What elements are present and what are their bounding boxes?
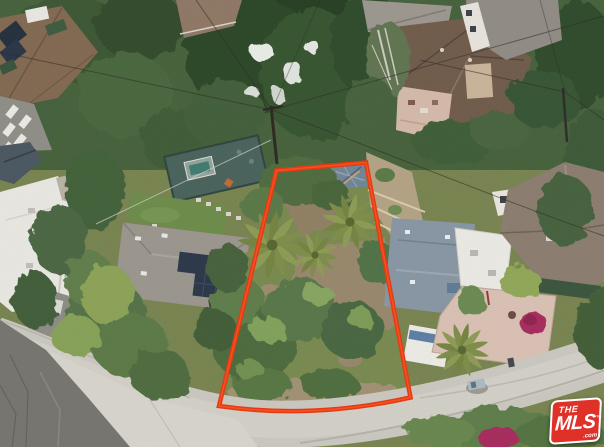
mls-watermark-logo: THE MLS™ .com: [549, 397, 602, 445]
mls-com-text: .com: [583, 433, 597, 440]
aerial-listing-photo: THE MLS™ .com: [0, 0, 604, 447]
trademark-symbol: ™: [596, 416, 602, 422]
mls-text: MLS™: [554, 413, 599, 433]
aerial-photo-scene: [0, 0, 604, 447]
photo-grain: [0, 0, 604, 447]
